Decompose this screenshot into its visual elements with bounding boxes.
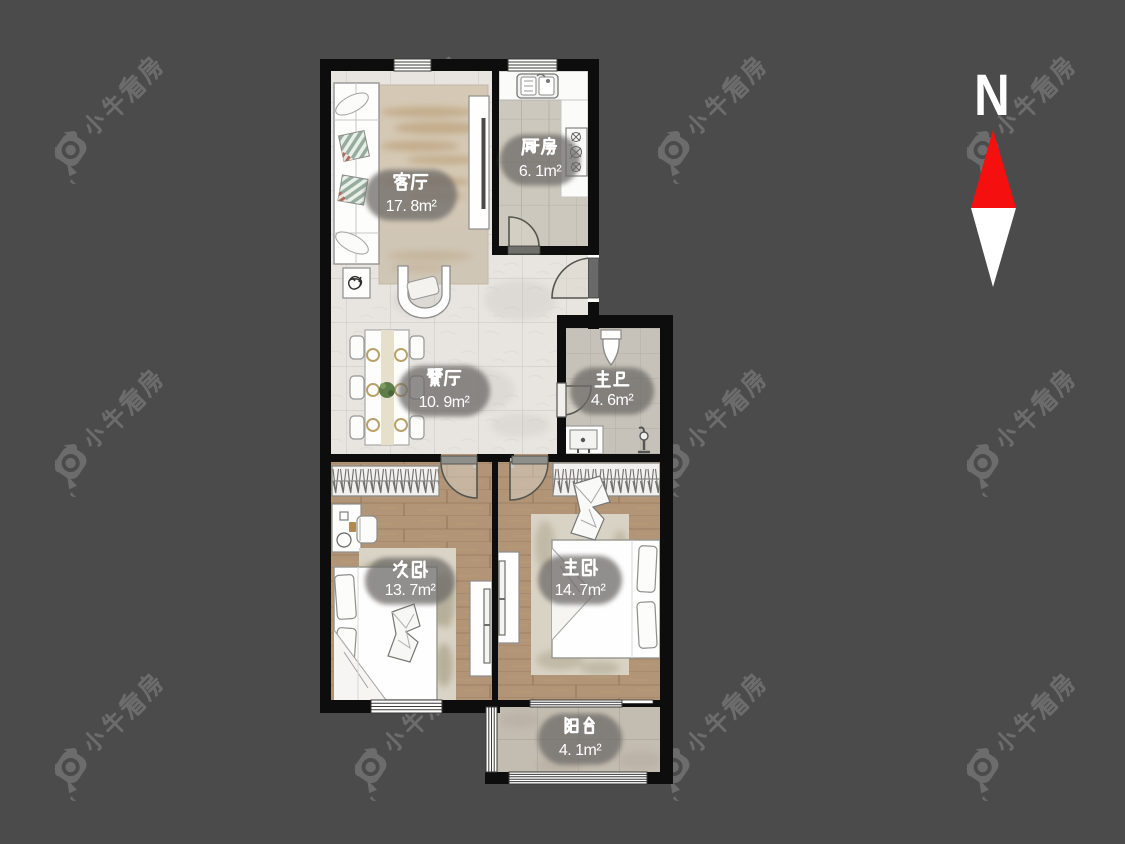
svg-text:14. 7m²: 14. 7m² — [555, 582, 607, 599]
svg-text:13. 7m²: 13. 7m² — [385, 582, 437, 599]
svg-text:17. 8m²: 17. 8m² — [386, 198, 438, 215]
svg-text:N: N — [974, 63, 1010, 128]
svg-text:4. 6m²: 4. 6m² — [591, 392, 635, 409]
svg-text:4. 1m²: 4. 1m² — [559, 742, 603, 759]
svg-text:10. 9m²: 10. 9m² — [419, 394, 471, 411]
svg-text:6. 1m²: 6. 1m² — [519, 163, 563, 180]
